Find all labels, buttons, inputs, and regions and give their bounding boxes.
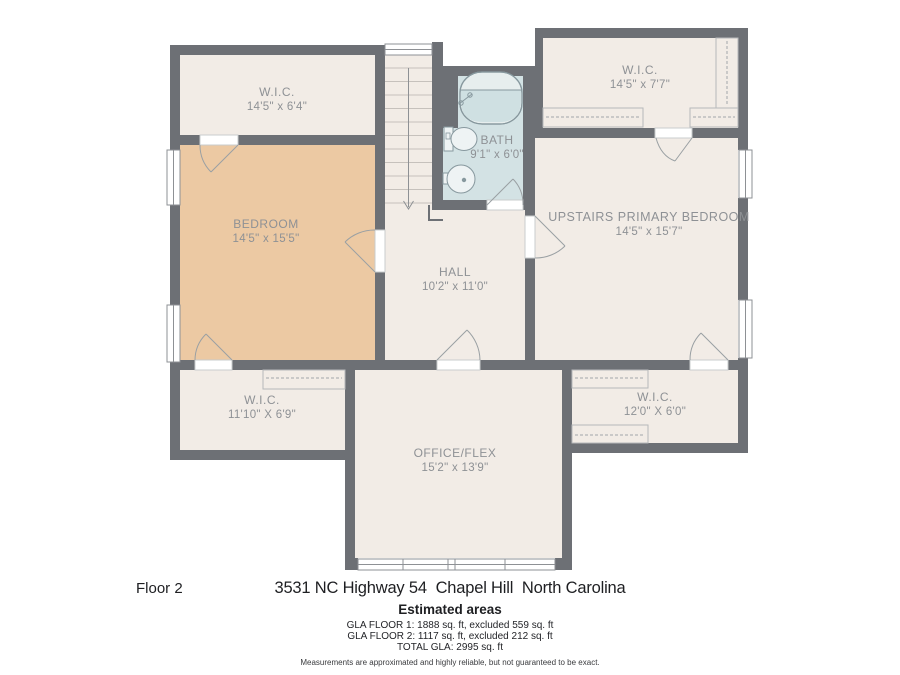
address-line: 3531 NC Highway 54 Chapel Hill North Car…	[0, 579, 900, 598]
gla-floor-2: GLA FLOOR 2: 1117 sq. ft, excluded 212 s…	[0, 631, 900, 642]
estimated-areas-title: Estimated areas	[0, 602, 900, 617]
room-label-bath: BATH9'1" x 6'0"	[470, 133, 524, 163]
room-label-wic-bottom-left: W.I.C.11'10" X 6'9"	[228, 393, 296, 423]
gla-floor-1: GLA FLOOR 1: 1888 sq. ft, excluded 559 s…	[0, 620, 900, 631]
room-label-bedroom: BEDROOM14'5" x 15'5"	[233, 217, 300, 247]
room-label-wic-top-left: W.I.C.14'5" x 6'4"	[247, 85, 307, 115]
gla-total: TOTAL GLA: 2995 sq. ft	[0, 642, 900, 653]
room-label-primary-bedroom: UPSTAIRS PRIMARY BEDROOM14'5" x 15'7"	[548, 210, 750, 240]
room-fills	[180, 38, 738, 558]
floor-plan-drawing	[0, 0, 900, 675]
room-label-office-flex: OFFICE/FLEX15'2" x 13'9"	[414, 446, 497, 476]
room-label-wic-top-right: W.I.C.14'5" x 7'7"	[610, 63, 670, 93]
floorplan-page: W.I.C.14'5" x 6'4" BATH9'1" x 6'0" W.I.C…	[0, 0, 900, 675]
room-label-wic-bottom-right: W.I.C.12'0" X 6'0"	[624, 390, 686, 420]
room-label-hall: HALL10'2" x 11'0"	[422, 265, 488, 295]
bathtub-icon	[459, 72, 522, 124]
measurement-disclaimer: Measurements are approximated and highly…	[0, 658, 900, 667]
